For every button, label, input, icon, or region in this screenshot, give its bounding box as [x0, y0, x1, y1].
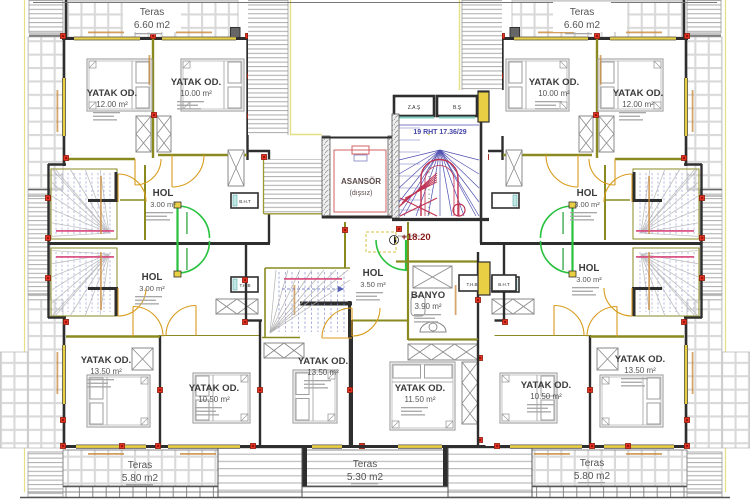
svg-text:HOL: HOL	[579, 263, 600, 274]
svg-text:Teras: Teras	[580, 458, 604, 469]
svg-text:12.00 m²: 12.00 m²	[96, 100, 128, 109]
svg-text:5.80 m2: 5.80 m2	[574, 471, 611, 482]
svg-text:10.50 m²: 10.50 m²	[198, 395, 230, 404]
svg-text:B.H.T: B.H.T	[498, 282, 510, 287]
svg-text:YATAK OD.: YATAK OD.	[613, 88, 663, 99]
svg-text:ASANSÖR: ASANSÖR	[341, 177, 381, 186]
svg-text:Teras: Teras	[140, 7, 164, 18]
svg-text:11.50 m²: 11.50 m²	[405, 395, 436, 404]
svg-text:3.50 m²: 3.50 m²	[360, 280, 386, 289]
svg-text:(dışsız): (dışsız)	[350, 190, 373, 197]
svg-text:13.50 m²: 13.50 m²	[624, 366, 656, 375]
svg-text:YATAK OD.: YATAK OD.	[81, 355, 131, 366]
svg-text:YATAK OD.: YATAK OD.	[395, 383, 445, 394]
svg-text:6.60 m2: 6.60 m2	[564, 20, 601, 31]
svg-text:YATAK OD.: YATAK OD.	[521, 380, 571, 391]
svg-text:B.Ş: B.Ş	[453, 105, 462, 111]
svg-text:19 RHT 17.36/29: 19 RHT 17.36/29	[413, 129, 466, 136]
svg-text:T.H.B: T.H.B	[239, 283, 250, 288]
svg-text:10.50 m²: 10.50 m²	[530, 392, 562, 401]
svg-text:6.60 m2: 6.60 m2	[134, 20, 171, 31]
svg-text:Teras: Teras	[128, 460, 152, 471]
svg-text:3.00 m²: 3.00 m²	[150, 200, 176, 209]
svg-text:B.H.T: B.H.T	[239, 199, 251, 204]
svg-text:3.00 m²: 3.00 m²	[139, 284, 165, 293]
svg-text:YATAK OD.: YATAK OD.	[171, 77, 221, 88]
svg-text:5.80 m2: 5.80 m2	[122, 473, 159, 484]
svg-text:10.00 m²: 10.00 m²	[180, 89, 212, 98]
svg-text:+18.20: +18.20	[401, 232, 430, 243]
svg-text:12.00 m²: 12.00 m²	[622, 100, 654, 109]
svg-text:3.00 m²: 3.00 m²	[576, 275, 602, 284]
svg-text:13.50 m²: 13.50 m²	[90, 367, 122, 376]
svg-text:YATAK OD.: YATAK OD.	[298, 356, 348, 367]
svg-text:HOL: HOL	[153, 188, 174, 199]
svg-text:T.H.B: T.H.B	[466, 282, 477, 287]
svg-text:Teras: Teras	[353, 459, 377, 470]
svg-text:10.00 m²: 10.00 m²	[538, 89, 570, 98]
svg-text:3.00 m²: 3.00 m²	[574, 200, 600, 209]
svg-text:YATAK OD.: YATAK OD.	[87, 88, 137, 99]
svg-text:BANYO: BANYO	[411, 290, 445, 301]
svg-text:YATAK OD.: YATAK OD.	[615, 354, 665, 365]
svg-text:Teras: Teras	[570, 7, 594, 18]
svg-text:YATAK OD.: YATAK OD.	[189, 383, 239, 394]
svg-text:HOL: HOL	[363, 268, 384, 279]
svg-text:5.30 m2: 5.30 m2	[347, 472, 384, 483]
svg-text:HOL: HOL	[577, 188, 598, 199]
svg-text:HOL: HOL	[142, 272, 163, 283]
svg-text:3.90 m²: 3.90 m²	[414, 302, 441, 311]
svg-text:YATAK OD.: YATAK OD.	[529, 77, 579, 88]
svg-text:Z.A.Ş: Z.A.Ş	[408, 105, 421, 111]
svg-text:13.50 m²: 13.50 m²	[307, 368, 339, 377]
